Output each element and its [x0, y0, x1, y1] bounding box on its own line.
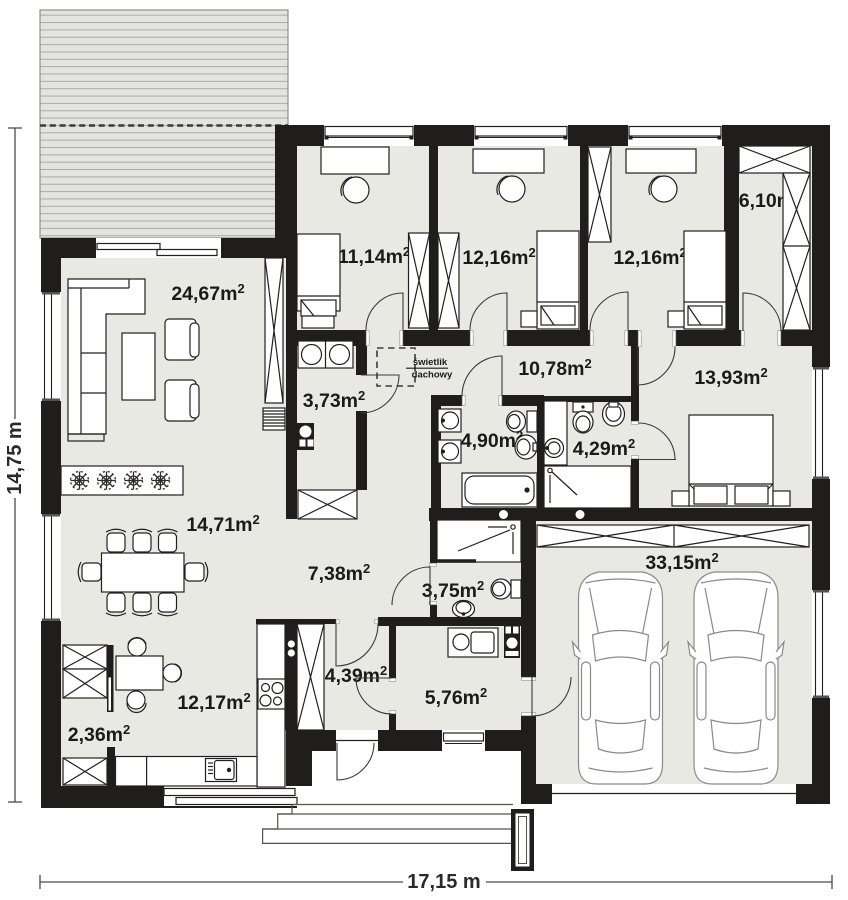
svg-text:4,29m2: 4,29m2: [573, 436, 636, 460]
svg-text:13,93m2: 13,93m2: [694, 365, 767, 389]
svg-text:12,16m2: 12,16m2: [462, 245, 535, 269]
svg-text:12,17m2: 12,17m2: [177, 690, 250, 714]
svg-text:świetlik: świetlik: [413, 357, 448, 368]
svg-text:3,75m2: 3,75m2: [422, 578, 485, 602]
svg-text:12,16m2: 12,16m2: [613, 245, 686, 269]
svg-text:14,75 m: 14,75 m: [4, 421, 26, 494]
svg-text:2,36m2: 2,36m2: [68, 722, 131, 746]
svg-text:3,73m2: 3,73m2: [303, 388, 366, 412]
svg-text:24,67m2: 24,67m2: [171, 281, 244, 305]
svg-text:5,76m2: 5,76m2: [425, 685, 488, 709]
svg-text:dachowy: dachowy: [412, 370, 453, 381]
svg-text:14,71m2: 14,71m2: [186, 512, 259, 536]
svg-text:17,15 m: 17,15 m: [407, 871, 480, 893]
svg-text:11,14m2: 11,14m2: [338, 244, 410, 268]
svg-text:10,78m2: 10,78m2: [518, 356, 591, 380]
svg-text:7,38m2: 7,38m2: [308, 561, 371, 585]
svg-text:33,15m2: 33,15m2: [645, 550, 718, 574]
